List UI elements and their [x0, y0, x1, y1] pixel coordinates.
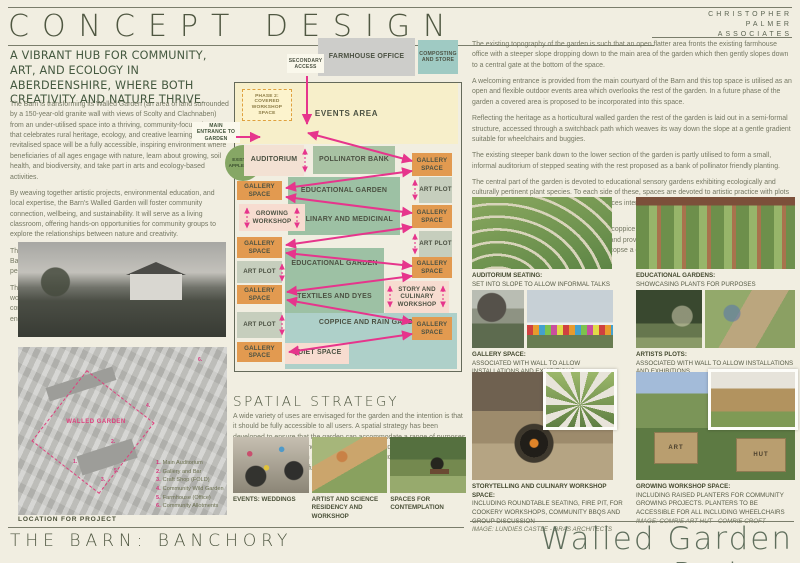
composting-store-box: COMPOSTING AND STORE	[418, 40, 458, 74]
map-marker: 1.	[73, 459, 77, 465]
colorwall-strip	[527, 325, 613, 335]
location-caption: LOCATION FOR PROJECT	[18, 516, 117, 523]
gallery-space-box: GALLERY SPACE	[237, 342, 282, 362]
art-plot-box: ART PLOT	[237, 312, 282, 338]
map-marker: 2.	[111, 439, 115, 445]
concept-design-board: CONCEPT DESIGN CHRISTOPHER PALMER ASSOCI…	[0, 0, 800, 563]
firm-line: ASSOCIATES	[650, 30, 792, 40]
storytelling-inset-photo	[543, 369, 617, 430]
design-paragraph: A welcoming entrance is provided from th…	[472, 77, 795, 108]
main-entrance-label: MAIN ENTRANCE TO GARDEN	[192, 122, 240, 143]
spatial-caption-row: EVENTS: WEDDINGS ARTIST AND SCIENCE RESI…	[233, 496, 466, 521]
map-marker: 3.	[101, 477, 105, 483]
legend-item: 6.Community Allotments	[156, 502, 226, 511]
gallery-colorwall-photo	[527, 290, 613, 348]
firm-name: CHRISTOPHER PALMER ASSOCIATES	[650, 10, 792, 40]
auditorium-box: AUDITORIUM	[244, 145, 304, 176]
art-plot-box: ART PLOT	[237, 261, 282, 283]
design-paragraph: Reflecting the heritage as a horticultur…	[472, 114, 795, 145]
firm-line: PALMER	[650, 20, 792, 30]
gallery-space-box: GALLERY SPACE	[237, 285, 282, 304]
firm-underline	[652, 37, 792, 38]
design-paragraph: The existing steeper bank down to the lo…	[472, 151, 795, 172]
walled-garden-map-label: WALLED GARDEN	[64, 419, 128, 427]
weddings-photo	[233, 437, 309, 493]
feature-caption: EDUCATIONAL GARDENS: SHOWCASING PLANTS F…	[636, 272, 795, 289]
secondary-access-label: SECONDARY ACCESS	[287, 54, 324, 73]
photo-caption: ARTIST AND SCIENCE RESIDENCY AND WORKSHO…	[312, 496, 388, 521]
planter-crate: ART	[654, 432, 698, 464]
gallery-hut-photo	[472, 290, 524, 348]
educational-garden-box: EDUCATIONAL GARDEN TEXTILES AND DYES	[285, 248, 384, 313]
art-plot-box: ART PLOT	[419, 177, 452, 203]
gallery-space-box: GALLERY SPACE	[237, 237, 282, 258]
planter-crate: HUT	[736, 438, 786, 472]
feature-caption: GROWING WORKSHOP SPACE: INCLUDING RAISED…	[636, 483, 795, 526]
bottom-left-rule	[8, 527, 464, 528]
gallery-space-box: GALLERY SPACE	[412, 317, 452, 340]
bench-shape	[430, 469, 450, 473]
spatial-photo-row	[233, 437, 466, 493]
photo-caption: EVENTS: WEDDINGS	[233, 496, 309, 521]
farmhouse-shape	[130, 274, 182, 300]
pollinator-bank-box: POLLINATOR BANK	[313, 146, 395, 174]
design-paragraph: The existing topography of the garden is…	[472, 40, 795, 71]
art-plot-box: ART PLOT	[419, 231, 452, 257]
map-marker: 5.	[114, 468, 118, 474]
growing-workshop-box: GROWING WORKSHOP	[239, 204, 305, 231]
story-culinary-workshop-box: STORY AND CULINARY WORKSHOP	[385, 281, 449, 313]
feature-caption: AUDITORIUM SEATING: SET INTO SLOPE TO AL…	[472, 272, 622, 289]
legend-item: 3.Craft Shop (FOLD)	[156, 476, 226, 485]
gallery-space-box: GALLERY SPACE	[412, 257, 452, 278]
gallery-space-box: GALLERY SPACE	[412, 205, 452, 228]
phase2-workshop-box: PHASE 2: COVERED WORKSHOP SPACE	[242, 89, 292, 121]
gallery-space-box: GALLERY SPACE	[237, 181, 282, 200]
concept-plan-diagram: FARMHOUSE OFFICE COMPOSTING AND STORE SE…	[190, 36, 462, 376]
map-marker: 4.	[146, 403, 150, 409]
auditorium-seating-photo	[472, 197, 612, 269]
project-location-title: THE BARN: BANCHORY	[10, 531, 292, 551]
legend-item: 2.Gallery and Bar	[156, 468, 226, 477]
legend-item: 1.Main Auditorium	[156, 459, 226, 468]
project-title: Walled Garden Project	[420, 521, 793, 563]
photo-caption: SPACES FOR CONTEMPLATION	[390, 496, 466, 521]
farmhouse-office-box: FARMHOUSE OFFICE	[318, 38, 415, 76]
gallery-space-box: GALLERY SPACE	[412, 153, 452, 176]
educational-gardens-photo	[636, 197, 795, 269]
top-rule	[8, 7, 792, 8]
growing-inset-photo	[708, 369, 798, 430]
residency-photo	[312, 437, 388, 493]
legend-item: 4.Community Wild Garden	[156, 485, 226, 494]
contemplation-photo	[390, 437, 466, 493]
map-legend: 1.Main Auditorium 2.Gallery and Bar 3.Cr…	[156, 459, 226, 511]
legend-item: 5.Farmhouse (Office)	[156, 494, 226, 503]
quiet-space-box: QUIET SPACE	[285, 343, 349, 364]
artist-plots-photo	[705, 290, 795, 348]
firm-line: CHRISTOPHER	[650, 10, 792, 20]
artist-forest-photo	[636, 290, 702, 348]
spatial-strategy-heading: SPATIAL STRATEGY	[233, 394, 399, 410]
